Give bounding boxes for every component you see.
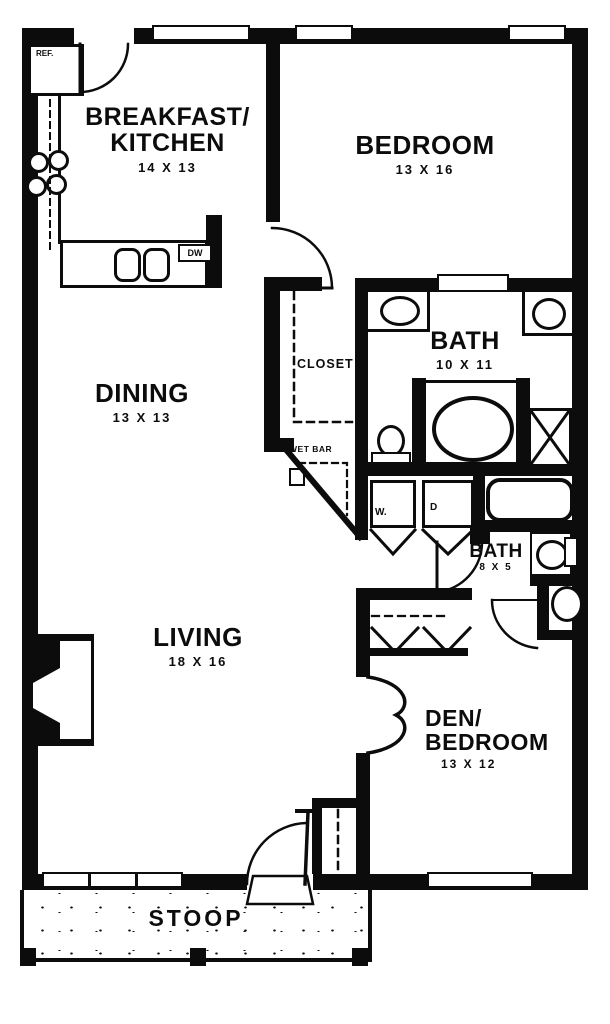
kitchen-name-line2: KITCHEN	[75, 130, 260, 156]
room-label-living: LIVING 18 X 16	[118, 624, 278, 669]
bath-door-threshold	[437, 274, 509, 292]
washer-box	[370, 480, 416, 528]
kitchen-dims: 14 X 13	[75, 161, 260, 175]
room-label-bath-master: BATH 10 X 11	[405, 328, 525, 372]
sink-basin-left	[114, 248, 141, 282]
room-label-stoop: STOOP	[96, 906, 296, 930]
tub-head-line	[412, 380, 530, 383]
stove-burner-1	[28, 152, 49, 173]
fireplace-hearth	[60, 641, 91, 739]
dining-dims: 13 X 13	[62, 411, 222, 425]
window-mullion-2	[135, 874, 138, 886]
tub-master	[432, 396, 514, 462]
floor-plan: REF. DW W. D BREAKFAST/ KITCHEN 14 X 13 …	[0, 0, 610, 1024]
room-label-dining: DINING 13 X 13	[62, 380, 222, 425]
bedroom-name: BEDROOM	[330, 132, 520, 159]
wetbar-label: WET BAR	[289, 444, 332, 454]
dryer-label: D	[430, 502, 437, 513]
sink-basin-right	[143, 248, 170, 282]
washer-label: W.	[375, 507, 387, 518]
bedroom-dims: 13 X 16	[330, 163, 520, 177]
closet-label: CLOSET	[297, 357, 354, 371]
sill-dashes-1	[195, 876, 247, 880]
wetbar-counter-diagonal	[288, 452, 360, 537]
window-top-bedroom-right	[508, 25, 566, 41]
wetbar-counter-dash	[299, 463, 347, 515]
room-label-kitchen: BREAKFAST/ KITCHEN 14 X 13	[75, 104, 260, 174]
room-label-den: DEN/ BEDROOM 13 X 12	[425, 706, 575, 771]
tub-small	[486, 478, 574, 522]
room-label-bath-small: BATH 8 X 5	[452, 542, 540, 573]
wall-den-west-upper	[356, 600, 370, 677]
refrigerator-label: REF.	[36, 49, 53, 58]
kitchen-name-line1: BREAKFAST/	[75, 104, 260, 130]
washer-bifold-door	[371, 530, 415, 554]
wall-kitchen-east	[266, 28, 280, 222]
stove-burner-4	[46, 174, 67, 195]
wall-hall-east	[355, 278, 368, 540]
wall-coat-closet-west	[312, 808, 322, 874]
window-top-bedroom-left	[295, 25, 353, 41]
dishwasher-label: DW	[188, 248, 203, 258]
dining-name: DINING	[62, 380, 222, 407]
shower-box	[528, 408, 572, 467]
wall-tub-left	[412, 378, 426, 467]
den-dims: 13 X 12	[441, 758, 575, 771]
stove-burner-2	[48, 150, 69, 171]
wall-coat-closet-north	[312, 798, 364, 808]
wall-toilet-small-west	[537, 586, 549, 636]
entry-door-gap	[247, 874, 313, 890]
vanity-left-sink	[380, 296, 420, 326]
wall-toilet-small-south	[537, 630, 572, 640]
bath-small-dims: 8 X 5	[452, 563, 540, 574]
wall-den-west-lower	[356, 753, 370, 874]
den-bath-door-arc	[492, 600, 537, 648]
stoop-post-left	[20, 948, 36, 966]
vanity-right-sink	[532, 298, 566, 330]
sill-dashes-2	[536, 876, 570, 880]
kitchen-door-arc	[80, 44, 128, 92]
kitchen-entry-gap	[74, 28, 134, 44]
living-dims: 18 X 16	[118, 655, 278, 669]
wetbar-sink-box	[289, 468, 305, 486]
window-bottom-den	[427, 872, 533, 888]
window-mullion-1	[88, 874, 91, 886]
window-bottom-living	[42, 872, 183, 888]
bath-master-name: BATH	[405, 328, 525, 354]
toilet-master-base	[371, 452, 411, 464]
stove-burner-3	[26, 176, 47, 197]
den-name-line1: DEN/	[425, 706, 575, 730]
stoop-post-center	[190, 948, 206, 966]
wall-den-north	[356, 588, 472, 600]
cabinet-small	[564, 537, 578, 567]
den-double-doors	[368, 677, 405, 753]
den-name-line2: BEDROOM	[425, 730, 575, 754]
living-name: LIVING	[118, 624, 278, 651]
bath-small-name: BATH	[452, 542, 540, 562]
wall-bedroom-south-right	[509, 278, 572, 292]
dishwasher-box: DW	[178, 244, 212, 262]
stoop-name: STOOP	[96, 906, 296, 930]
stoop-post-right	[352, 948, 368, 966]
den-closet-rail	[356, 648, 468, 656]
window-top-kitchen	[152, 25, 250, 41]
bath-master-dims: 10 X 11	[405, 358, 525, 372]
wall-dining-east	[264, 283, 280, 443]
room-label-bedroom: BEDROOM 13 X 16	[330, 132, 520, 177]
toilet-small	[551, 586, 583, 622]
